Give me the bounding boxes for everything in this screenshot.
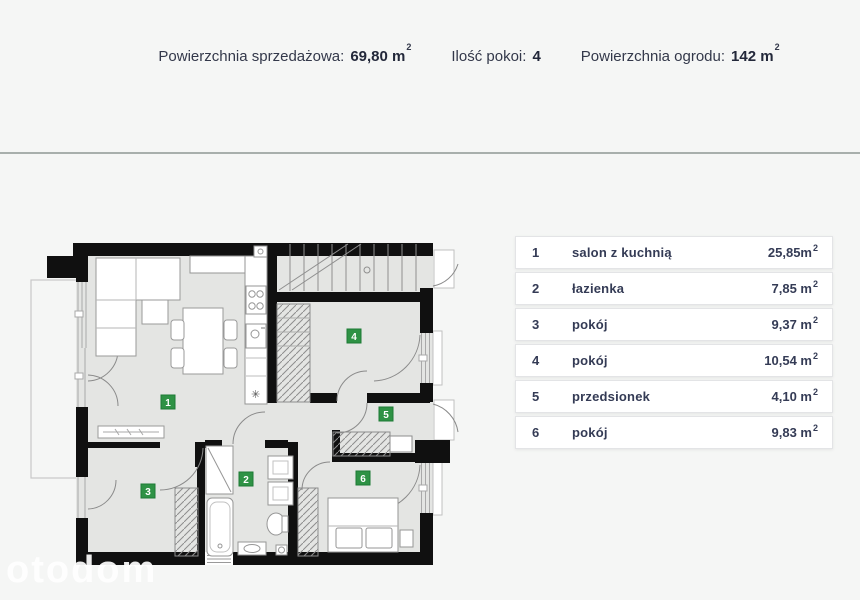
legend-room-number: 4 (532, 353, 572, 368)
chair (171, 348, 184, 368)
room1-room3-wall (88, 442, 160, 448)
wardrobe-room6 (298, 488, 318, 556)
kitchen-stairs-wall (267, 243, 277, 403)
wardrobe-hall (333, 432, 390, 456)
legend-room-number: 6 (532, 425, 572, 440)
stat-label: Powierzchnia sprzedażowa: (158, 48, 344, 65)
legend-room-area: 10,54 m (764, 353, 812, 368)
legend-area-sup: 2 (813, 423, 818, 433)
pillow (336, 528, 362, 548)
svg-text:5: 5 (383, 410, 389, 421)
badge-room-1: 1 (161, 395, 175, 409)
chair (171, 320, 184, 340)
legend-area-sup: 2 (813, 351, 818, 361)
wardrobe-room3 (175, 488, 198, 556)
stat-value: 69,80 m (350, 48, 405, 65)
stat-value: 142 m (731, 48, 774, 65)
bathtub (207, 498, 233, 556)
bath-sink (238, 542, 266, 555)
svg-text:3: 3 (145, 487, 151, 498)
svg-text:2: 2 (243, 475, 249, 486)
legend-room-label: przedsionek (572, 389, 772, 404)
stat-sales-area: Powierzchnia sprzedażowa: 69,80 m 2 (158, 48, 411, 65)
legend-row: 5 przedsionek 4,10 m 2 (515, 380, 833, 413)
legend-area-sup: 2 (813, 315, 818, 325)
legend-room-area: 25,85m (768, 245, 812, 260)
legend-room-area: 4,10 m (772, 389, 812, 404)
badge-room-3: 3 (141, 484, 155, 498)
toilet-tank (282, 516, 288, 532)
legend-room-number: 1 (532, 245, 572, 260)
kitchen-counter-top (190, 256, 246, 273)
chimney (47, 256, 77, 278)
stove (246, 286, 266, 314)
otodom-watermark: otodom (6, 549, 157, 592)
svg-text:6: 6 (360, 474, 366, 485)
room-legend: 1 salon z kuchnią 25,85m 2 2 łazienka 7,… (515, 236, 833, 452)
room4-bottom-wall (310, 393, 337, 403)
legend-area-sup: 2 (813, 387, 818, 397)
stat-sup: 2 (406, 42, 411, 52)
stat-sup: 2 (775, 42, 780, 52)
stat-label: Ilość pokoi: (451, 48, 526, 65)
legend-room-label: salon z kuchnią (572, 245, 768, 260)
svg-text:1: 1 (165, 398, 171, 409)
legend-row: 6 pokój 9,83 m 2 (515, 416, 833, 449)
pillow (366, 528, 392, 548)
fridge-symbol: ✳ (251, 389, 260, 401)
badge-room-6: 6 (356, 471, 370, 485)
badge-room-4: 4 (347, 329, 361, 343)
svg-text:4: 4 (351, 332, 357, 343)
coffee-table (142, 300, 168, 324)
wardrobe-room4 (277, 304, 310, 402)
window-frames (433, 250, 454, 515)
legend-row: 1 salon z kuchnią 25,85m 2 (515, 236, 833, 269)
horizontal-divider (0, 152, 860, 154)
chair (224, 320, 237, 340)
stat-rooms: Ilość pokoi: 4 (451, 48, 540, 65)
legend-room-label: pokój (572, 353, 764, 368)
washer (268, 456, 293, 479)
legend-room-label: łazienka (572, 281, 772, 296)
legend-row: 2 łazienka 7,85 m 2 (515, 272, 833, 305)
stat-label: Powierzchnia ogrodu: (581, 48, 725, 65)
badge-room-2: 2 (239, 472, 253, 486)
legend-room-area: 9,37 m (772, 317, 812, 332)
wall-vent (254, 246, 267, 257)
legend-room-label: pokój (572, 317, 772, 332)
dryer (268, 482, 293, 505)
badge-room-5: 5 (379, 407, 393, 421)
property-stats: Powierzchnia sprzedażowa: 69,80 m 2 Iloś… (0, 48, 860, 65)
legend-room-area: 7,85 m (772, 281, 812, 296)
stat-garden-area: Powierzchnia ogrodu: 142 m 2 (581, 48, 780, 65)
terrace-outline (31, 280, 81, 478)
dining-table (183, 308, 223, 374)
legend-row: 3 pokój 9,37 m 2 (515, 308, 833, 341)
legend-room-label: pokój (572, 425, 772, 440)
legend-room-number: 2 (532, 281, 572, 296)
legend-room-area: 9,83 m (772, 425, 812, 440)
legend-room-number: 5 (532, 389, 572, 404)
legend-area-sup: 2 (813, 243, 818, 253)
legend-row: 4 pokój 10,54 m 2 (515, 344, 833, 377)
nightstand (400, 530, 413, 547)
chair (224, 348, 237, 368)
legend-area-sup: 2 (813, 279, 818, 289)
legend-room-number: 3 (532, 317, 572, 332)
floor-plan: ✳ (30, 228, 460, 575)
stairs-bottom-wall (277, 292, 433, 302)
stat-value: 4 (532, 48, 540, 65)
